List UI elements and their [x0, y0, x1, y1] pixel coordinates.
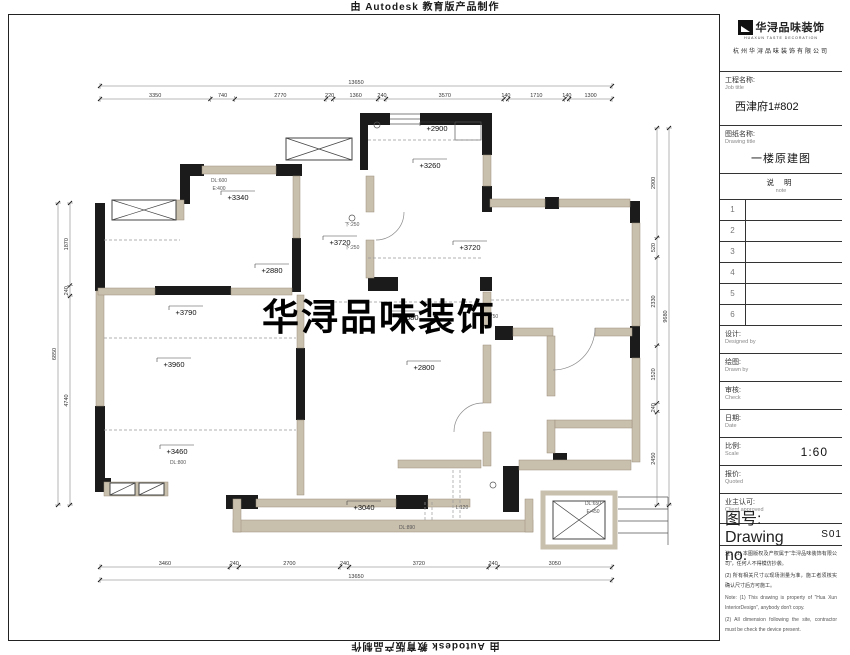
dim-label: 2450: [651, 453, 657, 465]
wall-segment: [396, 495, 428, 509]
dim-label: 240: [340, 561, 349, 567]
note-row-number: 6: [720, 305, 746, 325]
door-swing: [454, 403, 483, 432]
dim-label: 1300: [584, 93, 596, 99]
drawing-sheet: { "sheet": { "watermark_top": "由 Autodes…: [0, 0, 850, 653]
dim-label: 240: [377, 93, 386, 99]
check-label: 审核:: [725, 385, 837, 395]
dim-label: 2700: [283, 561, 295, 567]
wall-segment: [632, 358, 640, 462]
wall-segment: [632, 223, 640, 326]
company-name: 杭州华浔品味装饰有限公司: [724, 46, 838, 55]
job-title-label: 工程名称:: [725, 75, 837, 85]
dim-bottom-overall: 13650: [98, 574, 614, 583]
wall-segment: [96, 291, 104, 406]
dim-label: 2330: [651, 295, 657, 307]
drawing-title-field: 图纸名称: Drawing title 一楼原建图: [720, 126, 842, 174]
wall-segment: [398, 460, 481, 468]
dim-top-segments: 335074027702201360240357014017101401300: [98, 93, 614, 102]
dim-right-segments: 2900520233015202402450: [651, 126, 660, 507]
dim-label: 3570: [439, 93, 451, 99]
drawn-by-field: 绘图: Drawn by: [720, 354, 842, 382]
wall-segment: [525, 499, 533, 532]
pipe: [349, 215, 355, 221]
quoted-field: 报价: Quoted: [720, 466, 842, 494]
wall-segment: [547, 420, 555, 453]
wall-segment: [202, 166, 276, 174]
wall-segment: [513, 328, 553, 336]
wall-segment: [360, 113, 368, 170]
wall-segment: [483, 432, 491, 466]
room-height-label: +3260: [419, 161, 440, 170]
wall-segment: [95, 203, 105, 291]
wall-segment: [559, 199, 630, 207]
wall-segment: [483, 345, 491, 403]
infill-walls: [96, 155, 640, 532]
wall-segment: [296, 348, 305, 420]
wall-segment: [595, 328, 632, 336]
wall-segment: [545, 197, 559, 209]
dim-label: 220: [325, 93, 334, 99]
dim-label: 1360: [350, 93, 362, 99]
dim-label: 13650: [348, 574, 363, 580]
annotation-label: 下:250: [345, 222, 360, 228]
dim-right-overall: 9680: [663, 126, 672, 507]
room-height-label: +3040: [353, 503, 374, 512]
note-row: 4: [720, 263, 842, 284]
scale-field: 比例: Scale 1:60: [720, 438, 842, 466]
wall-segment: [233, 520, 533, 532]
dim-label: 240: [489, 561, 498, 567]
drawing-number-value: S01: [821, 529, 842, 540]
wall-segment: [482, 113, 492, 155]
drawing-number-label: 图号:: [725, 505, 808, 529]
note-row: 6: [720, 305, 842, 326]
job-title-label-en: Job title: [725, 85, 837, 91]
wall-segment: [490, 199, 545, 207]
dim-label: 2900: [651, 177, 657, 189]
note-row: 3: [720, 242, 842, 263]
dim-left-segments: 18702404740: [64, 201, 73, 507]
designed-by-label-en: Designed by: [725, 339, 837, 345]
dim-label: 1870: [64, 238, 70, 250]
room-height-label: +2900: [426, 124, 447, 133]
dim-label: 13650: [348, 80, 363, 86]
room-height-label: +3340: [227, 193, 248, 202]
dim-label: 4740: [64, 394, 70, 406]
job-title-value: 西津府1#802: [735, 98, 837, 114]
designed-by-label: 设计:: [725, 329, 837, 339]
plan-annotations: DL:600E:400下:250下:250750DL:800L:120DL:89…: [170, 178, 601, 531]
wall-segment: [226, 495, 258, 509]
dim-bottom-segments: 3460240270024037202403050: [98, 561, 614, 570]
annotation-label: DL:650: [585, 501, 601, 507]
wall-segment: [256, 499, 396, 507]
annotation-label: DL:800: [170, 460, 186, 466]
wall-segment: [292, 238, 301, 292]
wall-segment: [297, 420, 304, 495]
note-text-cn: (2) 所有相关尺寸以现场测量为准，施工者须核实确认尺寸后方可施工。: [725, 572, 837, 591]
wall-segment: [547, 336, 555, 396]
wall-segment: [176, 200, 184, 220]
wall-segment: [555, 420, 632, 428]
wall-segment: [503, 466, 519, 512]
room-height-label: +3460: [166, 447, 187, 456]
job-title-field: 工程名称: Job title 西津府1#802: [720, 72, 842, 126]
drawn-by-label-en: Drawn by: [725, 367, 837, 373]
note-row: 5: [720, 284, 842, 305]
dim-label: 3720: [413, 561, 425, 567]
wall-segment: [630, 201, 640, 223]
room-height-label: +2880: [261, 266, 282, 275]
room-height-label: +3960: [163, 360, 184, 369]
door-swing: [553, 328, 595, 370]
wall-segment: [95, 406, 105, 484]
dim-left-overall: 6850: [52, 201, 61, 507]
dim-label: 240: [230, 561, 239, 567]
door-swing: [376, 212, 404, 240]
dim-label: 740: [218, 93, 227, 99]
note-row-number: 5: [720, 284, 746, 304]
date-field: 日期: Date: [720, 410, 842, 438]
company-logo-subtext: HUAXUN TASTE DECORATION: [724, 36, 838, 40]
quoted-label-en: Quoted: [725, 479, 837, 485]
drawing-title-value: 一楼原建图: [725, 150, 837, 166]
room-height-label: +3720: [459, 243, 480, 252]
check-field: 审核: Check: [720, 382, 842, 410]
note-header-en: note: [720, 188, 842, 194]
note-row: 2: [720, 221, 842, 242]
note-row-number: 4: [720, 263, 746, 283]
dim-label: 240: [651, 403, 657, 412]
wall-segment: [155, 286, 231, 295]
dim-label: 140: [501, 93, 510, 99]
wall-segment: [495, 326, 513, 340]
wall-segment: [276, 164, 302, 176]
wall-segment: [98, 288, 155, 295]
note-text-en: (2) All dimension following the site, co…: [725, 616, 837, 635]
date-label-en: Date: [725, 423, 837, 429]
note-row-number: 3: [720, 242, 746, 262]
note-row: 1: [720, 200, 842, 221]
dim-label: 1520: [651, 368, 657, 380]
annotation-label: DL:600: [211, 178, 227, 184]
date-label: 日期:: [725, 413, 837, 423]
dim-label: 140: [562, 93, 571, 99]
sliding-door-line: [453, 470, 460, 520]
company-logo-text: 华浔品味装饰: [756, 19, 825, 35]
annotation-label: E:450: [586, 509, 599, 515]
note-row-number: 1: [720, 200, 746, 220]
annotation-label: L:120: [456, 505, 469, 511]
drawn-by-label: 绘图:: [725, 357, 837, 367]
wall-segment: [180, 164, 190, 204]
title-block-logo: 华浔品味装饰 HUAXUN TASTE DECORATION 杭州华浔品味装饰有…: [720, 14, 842, 72]
wall-segment: [519, 460, 631, 470]
drawing-title-label: 图纸名称:: [725, 129, 837, 139]
quoted-label: 报价:: [725, 469, 837, 479]
wall-segment: [233, 499, 241, 532]
company-watermark: 华浔品味装饰: [262, 287, 496, 341]
drawing-title-label-en: Drawing title: [725, 139, 837, 145]
company-logo-icon: [738, 20, 753, 35]
dim-label: 240: [64, 286, 70, 295]
annotation-label: E:400: [212, 186, 225, 192]
wall-segment: [366, 240, 374, 278]
dim-label: 520: [651, 243, 657, 252]
dim-label: 2770: [274, 93, 286, 99]
scale-value: 1:60: [801, 445, 828, 459]
note-text-en: Note: (1) This drawing is property of “H…: [725, 594, 837, 613]
wall-segment: [366, 176, 374, 212]
room-height-label: +3790: [175, 308, 196, 317]
note-header: 说 明 note: [720, 174, 842, 200]
check-label-en: Check: [725, 395, 837, 401]
wall-segment: [483, 155, 491, 186]
dim-top-overall: 13650: [98, 80, 614, 89]
dim-label: 9680: [663, 310, 669, 322]
room-height-label: +2800: [413, 363, 434, 372]
designed-by-field: 设计: Designed by: [720, 326, 842, 354]
note-header-cn: 说 明: [720, 177, 842, 188]
annotation-label: DL:890: [399, 525, 415, 531]
wall-segment: [293, 176, 300, 238]
title-block-notes: 注：(1) 本图版权及产权属于“华浔品味装饰有限公司”，任何人不得模仿抄袭。 (…: [720, 546, 842, 642]
dim-label: 6850: [52, 348, 58, 360]
pipe: [490, 482, 496, 488]
note-row-number: 2: [720, 221, 746, 241]
dim-label: 1710: [530, 93, 542, 99]
dim-label: 3350: [149, 93, 161, 99]
drawing-number-field: 图号: Drawing no. S01: [720, 524, 842, 546]
note-text-cn: 注：(1) 本图版权及产权属于“华浔品味装饰有限公司”，任何人不得模仿抄袭。: [725, 550, 837, 569]
dim-label: 3050: [549, 561, 561, 567]
title-block: 华浔品味装饰 HUAXUN TASTE DECORATION 杭州华浔品味装饰有…: [719, 14, 842, 641]
annotation-label: 下:250: [345, 245, 360, 251]
dim-label: 3460: [159, 561, 171, 567]
